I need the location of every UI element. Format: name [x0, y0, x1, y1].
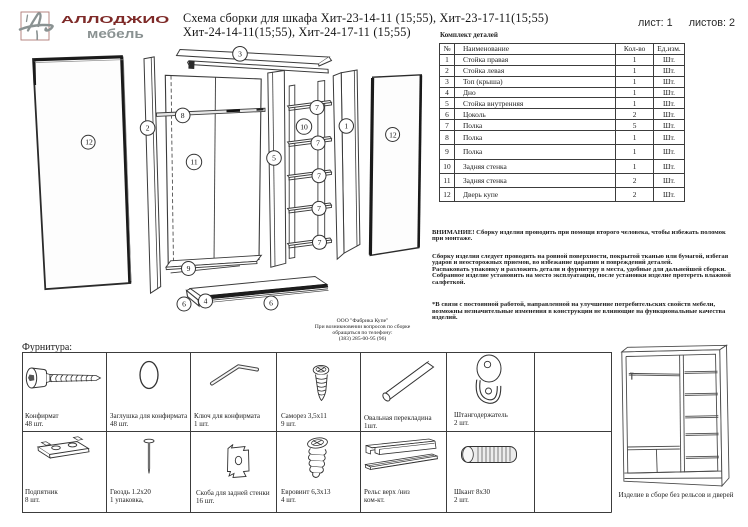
svg-text:9: 9: [187, 264, 191, 273]
svg-text:4: 4: [204, 297, 208, 306]
svg-text:7: 7: [318, 238, 322, 247]
svg-text:1: 1: [344, 122, 348, 131]
svg-text:3: 3: [238, 50, 242, 59]
svg-text:2: 2: [146, 124, 150, 133]
svg-text:7: 7: [316, 139, 320, 148]
svg-text:6: 6: [182, 300, 186, 309]
svg-text:5: 5: [272, 154, 276, 163]
svg-text:10: 10: [300, 122, 308, 131]
svg-text:6: 6: [269, 299, 273, 308]
svg-text:12: 12: [85, 138, 93, 147]
svg-text:8: 8: [181, 111, 185, 120]
svg-text:11: 11: [190, 158, 198, 167]
svg-text:12: 12: [389, 130, 397, 139]
svg-text:7: 7: [315, 103, 319, 112]
svg-text:7: 7: [317, 171, 321, 180]
svg-text:7: 7: [317, 204, 321, 213]
